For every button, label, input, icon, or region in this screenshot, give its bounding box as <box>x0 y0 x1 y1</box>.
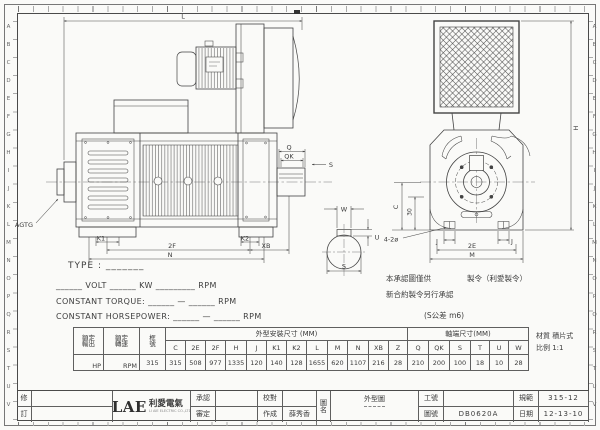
work-no-label: 工號 <box>419 391 444 407</box>
dim-column-header: H <box>226 341 247 355</box>
dim-column-header: S <box>450 341 471 355</box>
dim-column-header: C <box>166 341 186 355</box>
revision-label-top: 修 <box>17 391 32 407</box>
dim-value-cell: 18 <box>471 355 490 371</box>
dim-label-s-shaft: S <box>329 161 333 169</box>
revision-entry-top <box>32 391 113 407</box>
review-label: 審定 <box>191 407 216 423</box>
drawing-name-cell: 外型圖 <box>331 391 419 422</box>
date-value: 12-13-10 <box>539 407 589 423</box>
dim-column-header: K1 <box>267 341 287 355</box>
approval-note-1: 本承認圖僅供 <box>386 273 431 284</box>
constant-horsepower-line: CONSTANT HORSEPOWER: ______ — ______ RPM <box>56 312 262 321</box>
dim-value-cell: 10 <box>490 355 509 371</box>
dim-value-cell: 315 <box>166 355 186 371</box>
dim-label-qk: QK <box>284 153 294 161</box>
dim-column-header: QK <box>429 341 450 355</box>
dim-label-h: H <box>572 125 580 130</box>
header-shaft-dims: 軸端尺寸(MM) <box>408 328 529 341</box>
revision-entry-bottom <box>32 407 113 423</box>
shaft-section-detail <box>322 206 372 276</box>
logo-company-name: 利愛電氣 <box>149 400 183 409</box>
type-line: TYPE : _______ <box>68 261 144 271</box>
dim-value-cell: 120 <box>247 355 267 371</box>
header-outline-dims: 外型安裝尺寸 (MM) <box>166 328 408 341</box>
logo-lae-text: LAE <box>113 398 147 416</box>
date-label: 日期 <box>514 407 539 423</box>
material-note: 材質 積片式 <box>536 331 573 341</box>
dim-label-xb: XB <box>262 242 271 250</box>
scale-note: 比例 1:1 <box>536 343 564 353</box>
dim-column-header: N <box>348 341 369 355</box>
dim-column-header: J <box>247 341 267 355</box>
dim-value-cell: 508 <box>186 355 206 371</box>
logo-company-subtitle: LI AIE ELECTRIC CO.,LTD <box>149 410 191 414</box>
dim-column-header: Q <box>408 341 429 355</box>
dim-column-header: T <box>471 341 490 355</box>
dim-column-header: M <box>328 341 348 355</box>
header-frame-no: 框號 <box>140 328 166 355</box>
dim-label-k2: K2 <box>241 235 249 243</box>
dim-label-m: M <box>469 251 475 259</box>
dim-value-cell: 128 <box>287 355 307 371</box>
proofread-value <box>283 391 317 407</box>
dim-label-c: C <box>392 204 400 209</box>
spec-value: 315-12 <box>539 391 589 407</box>
dim-label-w: W <box>341 206 348 214</box>
dim-value-cell: 200 <box>429 355 450 371</box>
dim-label-30: 30 <box>407 208 414 216</box>
company-logo: LAE 利愛電氣 LI AIE ELECTRIC CO.,LTD <box>113 391 191 422</box>
header-rated-speed: 額定轉速 <box>104 328 140 355</box>
dim-value-cell: 210 <box>408 355 429 371</box>
drawing-no-label: 圖號 <box>419 407 444 423</box>
review-value <box>216 407 258 423</box>
dim-label-j-left: J <box>435 238 438 246</box>
work-no-value <box>444 391 514 407</box>
dim-column-header: XB <box>369 341 389 355</box>
made-by-label: 作成 <box>258 407 283 423</box>
dim-label-holes: 4-2ø <box>384 236 399 244</box>
dim-value-cell: 1107 <box>348 355 369 371</box>
dim-label-u: U <box>375 234 380 242</box>
dim-value-cell: 620 <box>328 355 348 371</box>
rating-line: ______ VOLT ______ KW _________ RPM <box>56 281 217 290</box>
dim-value-cell: 977 <box>206 355 226 371</box>
dim-column-header: W <box>509 341 529 355</box>
approve-label: 承認 <box>191 391 216 407</box>
header-rated-output: 額定輸出 <box>74 328 104 355</box>
dim-label-q: Q <box>286 144 291 152</box>
approval-note-3: 新合約製令另行承認 <box>386 289 454 300</box>
tach-label-agtg: AGTG <box>15 221 33 229</box>
dim-column-header: 2E <box>186 341 206 355</box>
dim-value-cell: 140 <box>267 355 287 371</box>
dim-value-cell: 28 <box>509 355 529 371</box>
drawing-no-value: DB0620A <box>444 407 514 423</box>
dim-value-cell: 216 <box>369 355 389 371</box>
tolerance-note: (S公差 m6) <box>424 310 464 321</box>
dim-label-j-right: J <box>510 238 513 246</box>
dim-column-header: K2 <box>287 341 307 355</box>
value-rated-output: HP <box>74 355 104 371</box>
value-frame-no: 315 <box>140 355 166 371</box>
proofread-label: 校對 <box>258 391 283 407</box>
dim-label-k1: K1 <box>97 235 105 243</box>
value-rated-speed: RPM <box>104 355 140 371</box>
dim-value-cell: 100 <box>450 355 471 371</box>
dim-label-s-section: S <box>342 263 346 271</box>
motor-end-view <box>420 21 535 230</box>
dim-column-header: U <box>490 341 509 355</box>
constant-torque-line: CONSTANT TORQUE: ______ — ______ RPM <box>56 297 237 306</box>
drawing-name: 外型圖 <box>364 391 385 407</box>
revision-label-bottom: 訂 <box>17 407 32 423</box>
title-block: 修 LAE 利愛電氣 LI AIE ELECTRIC CO.,LTD 承認 校對… <box>17 390 589 422</box>
dim-label-2e: 2E <box>468 242 476 250</box>
dim-label-2f: 2F <box>168 242 176 250</box>
approve-value <box>216 391 258 407</box>
dimension-table: 額定輸出 額定轉速 框號 外型安裝尺寸 (MM) 軸端尺寸(MM) C2E2FH… <box>73 327 529 371</box>
approval-note-2: 製令（利愛製令） <box>467 273 527 284</box>
side-view-dimensions <box>36 10 326 263</box>
dim-column-header: Z <box>389 341 408 355</box>
dim-column-header: L <box>307 341 328 355</box>
dim-column-header: 2F <box>206 341 226 355</box>
dim-label-l: L <box>181 13 185 21</box>
dim-label-n: N <box>168 251 173 259</box>
dim-value-cell: 28 <box>389 355 408 371</box>
spec-label: 規範 <box>514 391 539 407</box>
drawing-sheet: ABCDEFGHIJKLMNOPQRSTUV ABCDEFGHIJKLMNOPQ… <box>0 0 600 430</box>
made-by-value: 薛秀香 <box>283 407 317 423</box>
dim-value-cell: 1655 <box>307 355 328 371</box>
drawing-name-vertical-label: 圖名 <box>317 391 331 422</box>
dim-value-cell: 1335 <box>226 355 247 371</box>
